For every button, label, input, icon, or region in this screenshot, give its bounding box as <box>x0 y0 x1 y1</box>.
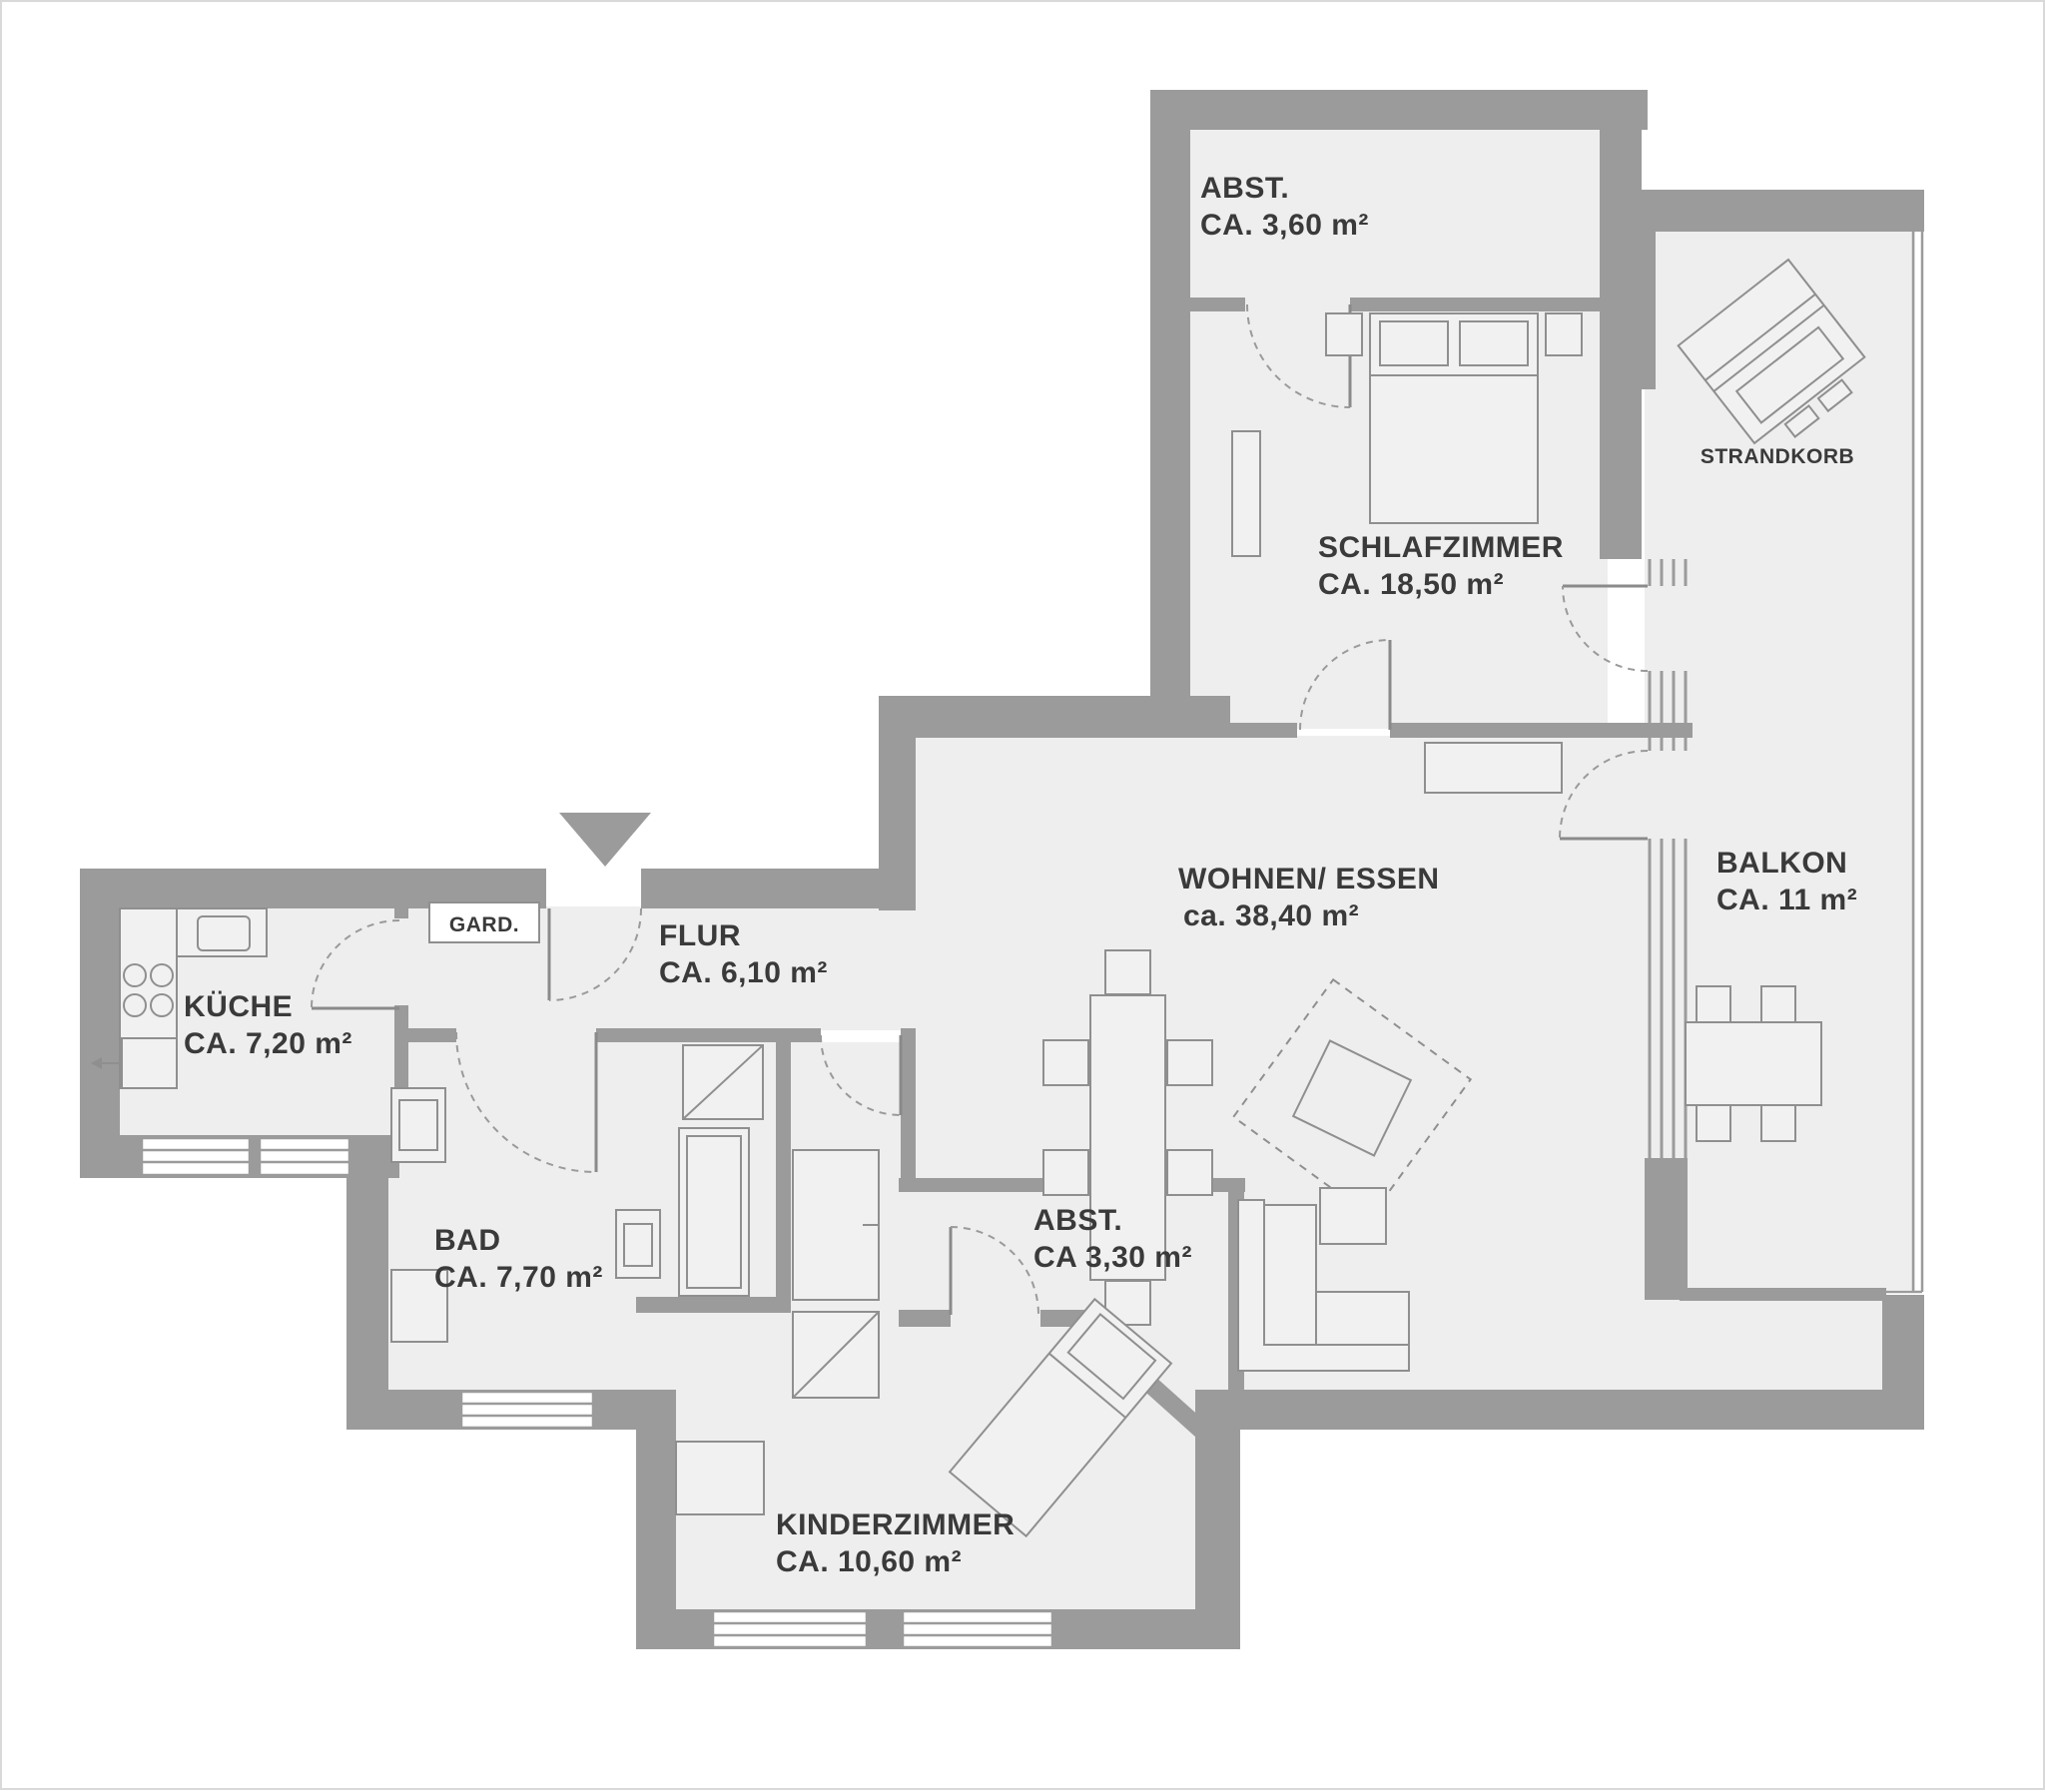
label-kinderzimmer-name: KINDERZIMMER <box>776 1508 1015 1541</box>
bad-window <box>461 1392 593 1428</box>
label-schlafzimmer-area: CA. 18,50 m² <box>1318 568 1504 601</box>
label-balkon-area: CA. 11 m² <box>1716 884 1857 916</box>
label-kueche-area: CA. 7,20 m² <box>184 1027 352 1060</box>
label-bad-name: BAD <box>434 1224 501 1257</box>
label-abst-mitte-area: CA 3,30 m² <box>1033 1241 1192 1274</box>
bathtub <box>679 1128 749 1296</box>
nightstand-left <box>1326 313 1362 355</box>
kueche-window <box>142 1138 349 1175</box>
side-table <box>1320 1188 1386 1244</box>
label-bad-area: CA. 7,70 m² <box>434 1261 603 1294</box>
label-wohnen-area: ca. 38,40 m² <box>1183 899 1359 932</box>
garderobe-label: GARD. <box>449 913 519 936</box>
label-strandkorb: STRANDKORB <box>1701 445 1854 468</box>
floor-plan-svg: GARD. ABST. CA. 3,60 m² SCHLAFZIMMER CA.… <box>2 2 2045 1792</box>
label-schlafzimmer-name: SCHLAFZIMMER <box>1318 531 1564 564</box>
label-abst-oben-name: ABST. <box>1200 172 1289 205</box>
label-balkon-name: BALKON <box>1716 847 1847 880</box>
floor-plan-page: GARD. ABST. CA. 3,60 m² SCHLAFZIMMER CA.… <box>0 0 2045 1790</box>
label-wohnen-name: WOHNEN/ ESSEN <box>1178 863 1440 896</box>
nightstand-right <box>1546 313 1582 355</box>
label-kueche-name: KÜCHE <box>184 990 293 1023</box>
entrance-arrow-icon <box>559 813 651 867</box>
double-bed <box>1370 313 1538 523</box>
kinder-desk <box>676 1442 764 1514</box>
wardrobe-schlafzimmer <box>1232 431 1260 556</box>
label-abst-mitte-name: ABST. <box>1033 1204 1122 1237</box>
sideboard <box>1425 743 1562 793</box>
toilet <box>616 1210 660 1278</box>
kinder-wardrobes <box>793 1150 879 1398</box>
label-flur-name: FLUR <box>659 919 741 952</box>
label-kinderzimmer-area: CA. 10,60 m² <box>776 1545 962 1578</box>
label-flur-area: CA. 6,10 m² <box>659 956 828 989</box>
garderobe-box: GARD. <box>429 902 539 942</box>
label-abst-oben-area: CA. 3,60 m² <box>1200 209 1369 242</box>
floor-wohnen-erker <box>1645 1298 1884 1394</box>
